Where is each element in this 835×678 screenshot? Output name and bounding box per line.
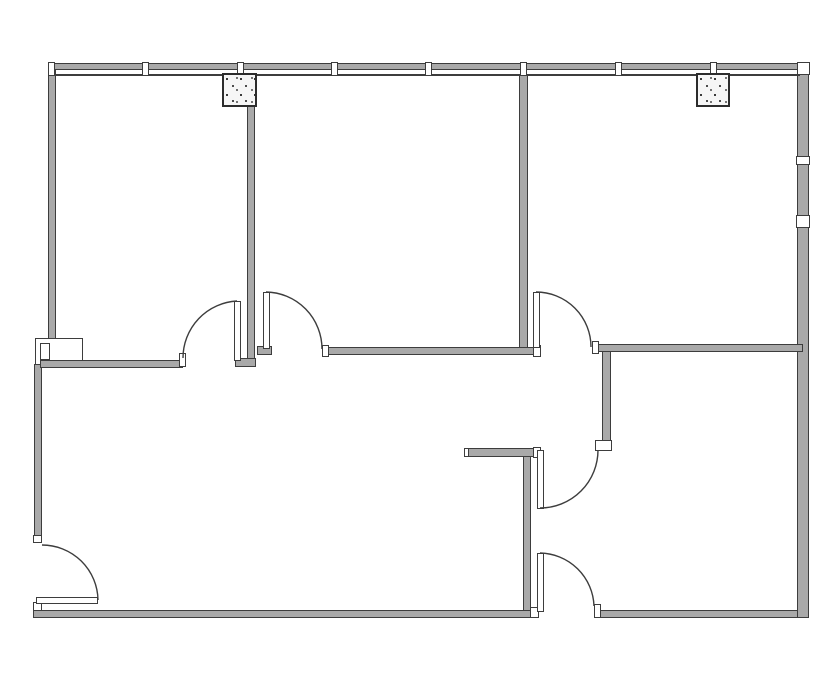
window-mullion-1 (48, 62, 55, 76)
room3-wall-left-cap (592, 341, 599, 354)
door2-swing-arc (266, 292, 322, 349)
room3-bottom-wall (592, 344, 803, 352)
right-wall-window-mullion (796, 156, 810, 165)
bottom-exterior-wall-right (594, 610, 809, 618)
room1-bottom-wall (40, 360, 183, 368)
window-mullion-2 (142, 62, 149, 76)
left-exterior-wall-upper (48, 69, 56, 339)
bottom-wall-right-end-cap (594, 604, 601, 618)
door3-swing-arc (536, 292, 591, 347)
door6-swing-arc (42, 545, 98, 600)
room2-bottom-wall (322, 347, 541, 355)
left-exterior-wall-lower (34, 364, 42, 543)
door5-swing-arc (540, 553, 594, 606)
entry-wall-vertical (602, 351, 611, 441)
door1-left-jamb-cap (179, 353, 186, 367)
right-wall-break-post (796, 215, 810, 228)
core-wall-vertical (523, 456, 531, 611)
wall-box-left-inner (40, 343, 50, 360)
alcove-wall-left-cap (464, 448, 469, 457)
partition-wall-room1-room2 (247, 105, 255, 361)
door1-swing-arc (183, 301, 237, 358)
door3-leaf (533, 292, 540, 348)
floor-plan-canvas (0, 0, 835, 678)
window-mullion-7 (615, 62, 622, 76)
right-exterior-wall-lower (797, 227, 809, 618)
door6-leaf (36, 597, 98, 604)
room2-wall-left-cap (322, 345, 329, 357)
entry-door-jamb-box (595, 440, 612, 451)
structural-column-right (696, 73, 730, 107)
window-mullion-6 (520, 62, 527, 76)
door2-leaf (263, 292, 270, 349)
right-exterior-wall-upper (797, 69, 809, 217)
window-mullion-4 (331, 62, 338, 76)
bottom-exterior-wall-left (33, 610, 538, 618)
door4-leaf (537, 450, 544, 509)
top-right-corner-post (797, 62, 810, 75)
window-mullion-5 (425, 62, 432, 76)
door5-leaf (537, 553, 544, 612)
left-wall-bottom-cap (33, 535, 42, 543)
structural-column-left (222, 73, 257, 107)
door1-leaf (234, 301, 241, 361)
door4-swing-arc (540, 450, 598, 508)
partition-wall-room2-room3 (519, 74, 528, 348)
